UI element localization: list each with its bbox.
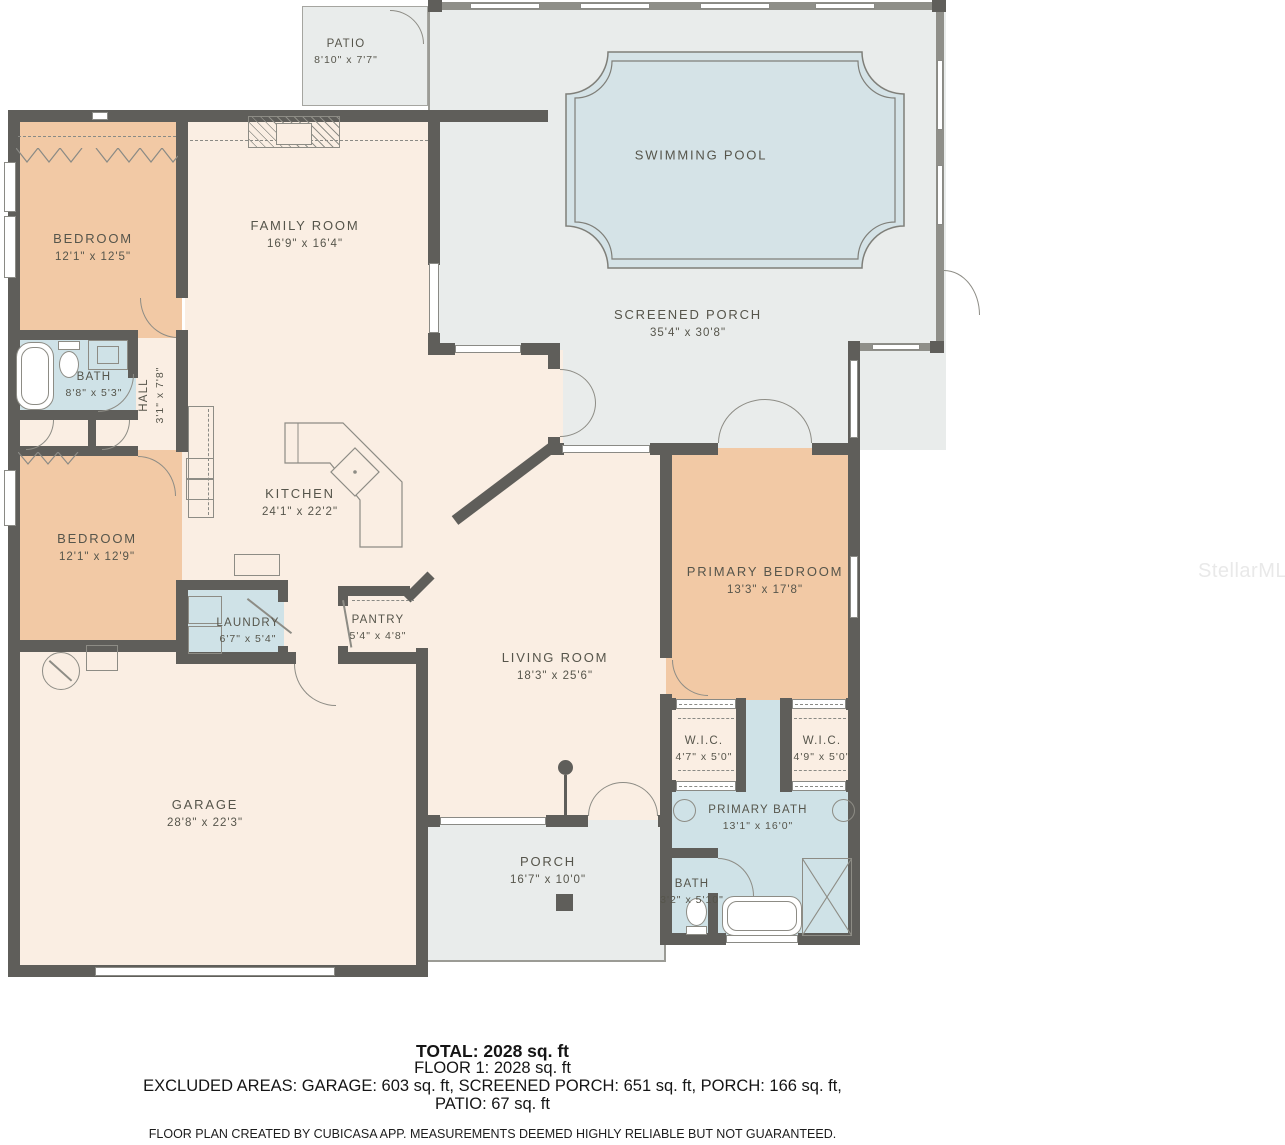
wall-bath1-bottom: [8, 410, 138, 420]
entry-window: [455, 345, 521, 353]
screen-post: [932, 0, 946, 12]
primary-window: [850, 556, 858, 618]
wall-living-bottom-b: [546, 815, 588, 827]
room-dims: 16'9" x 16'4": [251, 236, 360, 253]
wic-right-sliding-door: [792, 699, 846, 709]
room-living: [425, 445, 670, 820]
wall-pbath-top-a: [660, 780, 676, 792]
room-dims: 16'7" x 10'0": [510, 872, 586, 889]
hall-label: HALL 3'1" x 7'8": [136, 367, 168, 424]
bathtub-inner: [21, 347, 49, 405]
wall-primary-right: [848, 352, 860, 945]
bedroom2-window: [4, 470, 16, 526]
room-name: PANTRY: [352, 614, 405, 626]
wall-laundry-right-a: [278, 580, 288, 602]
room-dims: 13'3" x 17'8": [687, 582, 844, 599]
room-porch: [428, 820, 666, 962]
room-name: W.I.C.: [685, 735, 724, 747]
porch-column: [556, 894, 573, 911]
floor1-area: FLOOR 1: 2028 sq. ft: [10, 1060, 975, 1078]
bedroom1-window: [4, 162, 16, 212]
excluded-areas-line2: PATIO: 67 sq. ft: [10, 1096, 975, 1114]
excluded-areas-line1: EXCLUDED AREAS: GARAGE: 603 sq. ft, SCRE…: [10, 1078, 975, 1096]
total-area: TOTAL: 2028 sq. ft: [10, 1042, 975, 1060]
patio-label: PATIO 8'10" x 7'7": [314, 36, 378, 68]
room-dims: 12'1" x 12'5": [53, 249, 133, 266]
kitchen-label: KITCHEN 24'1" x 22'2": [262, 485, 338, 521]
living-column: [558, 760, 573, 775]
primary-tub-inner: [727, 901, 797, 931]
wic-left-sliding-door2: [676, 781, 736, 791]
screen-post: [428, 0, 442, 12]
room-family: [185, 118, 435, 448]
screen-window: [872, 344, 920, 350]
pantry-shelf-dash: [352, 600, 414, 601]
primary-sink-left: [673, 799, 696, 822]
wic-shelf-dash: [794, 770, 846, 771]
disclaimer: FLOOR PLAN CREATED BY CUBICASA APP. MEAS…: [10, 1127, 975, 1141]
wall-pantry-left-b: [338, 646, 348, 664]
wic-right-sliding-door2: [792, 781, 846, 791]
room-dims: 4'9" x 5'0": [794, 750, 851, 765]
room-name: BEDROOM: [57, 531, 137, 546]
room-dims: 5'4" x 4'8": [350, 629, 407, 644]
wall-wic-divider-right: [780, 698, 792, 792]
bedroom2-label: BEDROOM 12'1" x 12'9": [57, 530, 137, 566]
living-column-stem: [564, 775, 567, 815]
wic-shelf-dash: [678, 770, 734, 771]
wall-bath2-right-a: [708, 848, 718, 858]
screen-window: [937, 60, 943, 130]
bedroom1-closet-doors: [16, 148, 178, 164]
bath2-label: BATH 3'2" x 5'10": [660, 876, 724, 908]
room-name: BEDROOM: [53, 231, 133, 246]
living-bottom-window: [440, 817, 546, 825]
garage-cabinet: [86, 645, 118, 671]
room-dims: 24'1" x 22'2": [262, 504, 338, 521]
fireplace-inner: [276, 123, 312, 145]
room-name: SWIMMING POOL: [635, 148, 767, 163]
wall-entry-right-a: [548, 355, 560, 369]
shower-x: [802, 858, 852, 936]
pantry-label: PANTRY 5'4" x 4'8": [350, 612, 407, 644]
room-name: PATIO: [327, 38, 366, 50]
room-name: HALL: [138, 378, 150, 412]
wall-wic-top-d: [846, 698, 860, 710]
porch-label: PORCH 16'7" x 10'0": [510, 853, 586, 889]
room-name: BATH: [77, 371, 112, 383]
living-top-window: [562, 445, 650, 453]
porch-edge-bottom: [428, 960, 666, 962]
room-name: BATH: [675, 878, 710, 890]
room-entry: [428, 350, 563, 450]
swimming-pool-label: SWIMMING POOL: [635, 147, 767, 166]
wic-shelf-dash: [794, 718, 846, 719]
laundry-label: LAUNDRY 6'7" x 5'4": [216, 615, 279, 647]
area-summary: TOTAL: 2028 sq. ft FLOOR 1: 2028 sq. ft …: [10, 1042, 975, 1141]
room-name: PRIMARY BEDROOM: [687, 564, 844, 579]
room-wic-corridor: [742, 700, 784, 792]
screen-window: [937, 165, 943, 225]
kitchen-island: [255, 400, 435, 560]
bedroom2-closet-doors: [18, 452, 84, 466]
bath2-toilet-tank: [686, 926, 707, 935]
room-name: LIVING ROOM: [502, 650, 608, 665]
wall-entry-top-b: [521, 343, 560, 355]
screen-post: [930, 341, 944, 353]
wic-left-sliding-door: [676, 699, 736, 709]
room-dims: 18'3" x 25'6": [502, 668, 608, 685]
wic-right-label: W.I.C. 4'9" x 5'0": [794, 733, 851, 765]
wall-living-bottom-a: [428, 815, 440, 827]
room-name: GARAGE: [172, 797, 238, 812]
patio-porch-divider: [428, 4, 430, 110]
dishwasher: [234, 554, 280, 576]
screened-porch-label: SCREENED PORCH 35'4" x 30'8": [614, 306, 762, 342]
wall-garage-right: [416, 648, 428, 977]
screen-window: [580, 3, 650, 9]
room-name: FAMILY ROOM: [251, 218, 360, 233]
living-room-label: LIVING ROOM 18'3" x 25'6": [502, 649, 608, 685]
room-dims: 4'7" x 5'0": [676, 750, 733, 765]
stellar-mls-watermark: StellarMLS: [1198, 560, 1285, 583]
wall-bed1-family: [176, 110, 188, 298]
wall-pantry-top: [338, 586, 410, 596]
room-name: LAUNDRY: [216, 617, 279, 629]
stove: [186, 458, 214, 479]
room-dims: 6'7" x 5'4": [216, 632, 279, 647]
room-dims: 35'4" x 30'8": [614, 325, 762, 342]
primary-bath-label: PRIMARY BATH 13'1" x 16'0": [708, 802, 807, 834]
family-room-label: FAMILY ROOM 16'9" x 16'4": [251, 217, 360, 253]
bath1-label: BATH 8'8" x 5'3": [66, 369, 123, 401]
room-name: PRIMARY BATH: [708, 804, 807, 816]
wall-family-right-a: [428, 110, 440, 265]
room-name: SCREENED PORCH: [614, 307, 762, 322]
bath1-sink: [97, 346, 119, 364]
top-wall-window: [92, 112, 108, 120]
room-name: KITCHEN: [265, 486, 335, 501]
wic-left-label: W.I.C. 4'7" x 5'0": [676, 733, 733, 765]
screen-window: [815, 3, 875, 9]
bedroom1-label: BEDROOM 12'1" x 12'5": [53, 230, 133, 266]
garage-door: [95, 967, 335, 976]
wall-bath1-top: [8, 330, 138, 340]
room-dims: 8'10" x 7'7": [314, 53, 378, 68]
wall-laundry-top: [176, 580, 288, 590]
wall-wic-divider-left: [736, 698, 746, 792]
bedroom1-closet-dash: [18, 136, 176, 137]
room-dims: 13'1" x 16'0": [708, 819, 807, 834]
room-dims: 3'2" x 5'10": [660, 893, 724, 908]
room-name: PORCH: [520, 854, 576, 869]
wall-wic-top-a: [660, 698, 676, 710]
wall-mid-b: [338, 652, 428, 664]
screen-window: [470, 3, 540, 9]
wall-living-bottom-c: [658, 815, 670, 827]
primary-sink-right: [832, 799, 855, 822]
family-right-window: [429, 263, 439, 333]
garage-label: GARAGE 28'8" x 22'3": [167, 796, 243, 832]
screen-window: [700, 3, 770, 9]
porch-door-arc: [944, 270, 980, 315]
pbath-window: [726, 935, 798, 943]
wall-mid-a: [288, 652, 296, 664]
toilet-tank: [58, 341, 80, 350]
wall-entry-top-a: [428, 343, 455, 355]
floor-plan: PATIO 8'10" x 7'7" SWIMMING POOL SCREENE…: [0, 0, 1285, 1145]
primary-window: [850, 360, 858, 438]
bedroom1-window: [4, 216, 16, 278]
wic-shelf-dash: [678, 718, 734, 719]
room-dims: 28'8" x 22'3": [167, 815, 243, 832]
oven: [186, 479, 214, 500]
room-dims: 3'1" x 7'8": [153, 367, 168, 424]
room-dims: 12'1" x 12'9": [57, 549, 137, 566]
room-dims: 8'8" x 5'3": [66, 386, 123, 401]
primary-bedroom-label: PRIMARY BEDROOM 13'3" x 17'8": [687, 563, 844, 599]
room-name: W.I.C.: [803, 735, 842, 747]
wall-pbath-top-b: [846, 780, 860, 792]
wall-living-primary-a: [660, 452, 672, 658]
wall-hall-right: [176, 330, 188, 452]
